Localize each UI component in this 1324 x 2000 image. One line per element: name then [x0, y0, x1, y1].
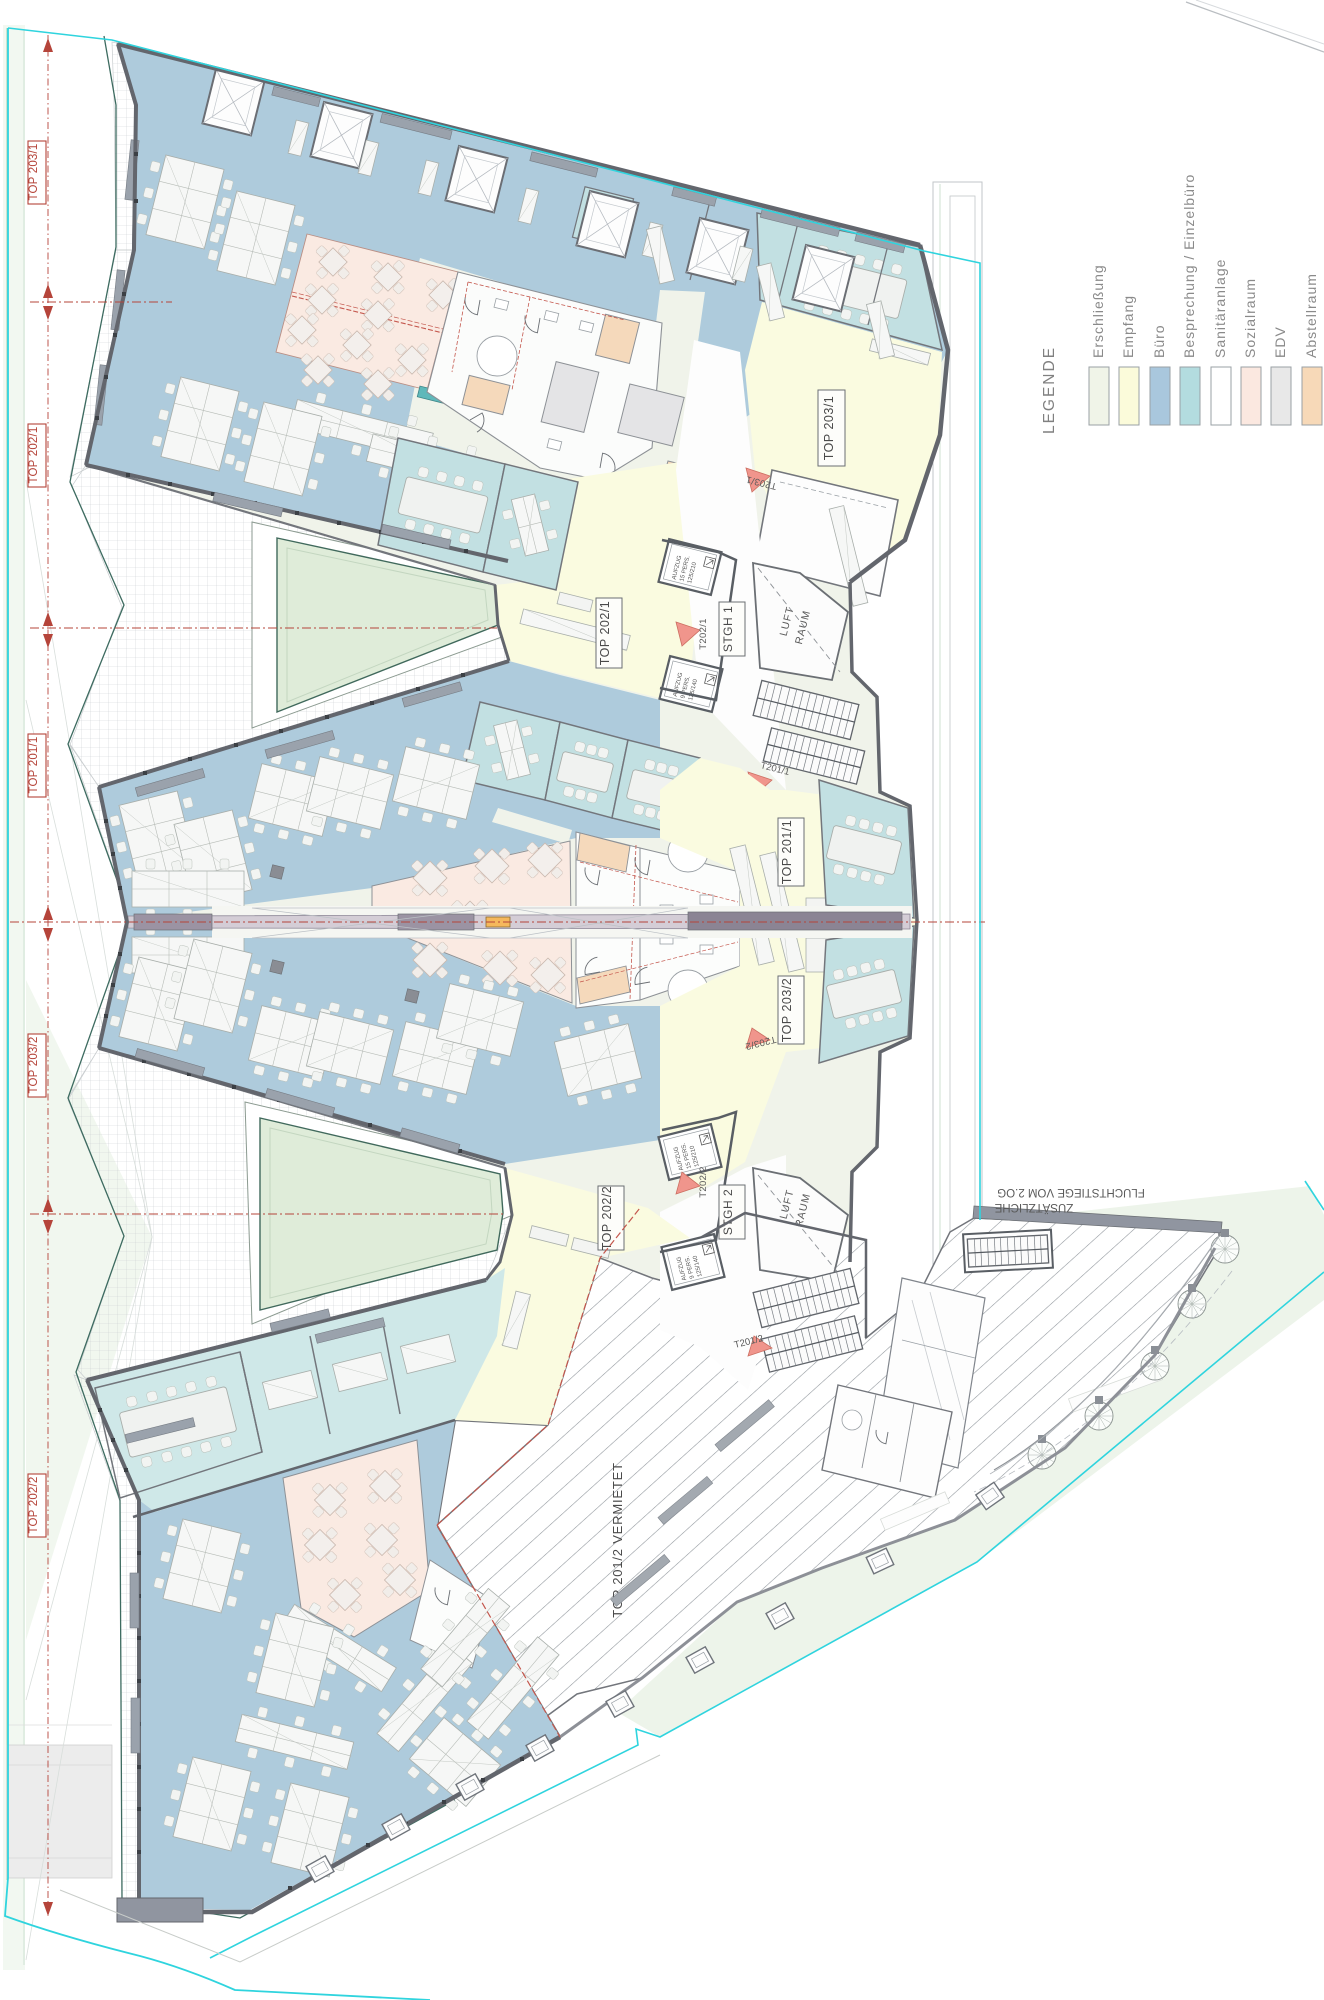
- svg-text:Büro: Büro: [1151, 324, 1167, 358]
- svg-text:Empfang: Empfang: [1120, 295, 1136, 358]
- svg-text:TOP 202/1: TOP 202/1: [28, 427, 40, 484]
- svg-text:T202/1: T202/1: [698, 618, 709, 649]
- svg-text:STGH 1: STGH 1: [721, 606, 735, 652]
- svg-text:EDV: EDV: [1272, 326, 1288, 358]
- svg-text:TOP 202/2: TOP 202/2: [28, 1477, 40, 1534]
- svg-text:TOP 202/1: TOP 202/1: [598, 601, 612, 666]
- svg-text:TOP 203/1: TOP 203/1: [822, 396, 836, 461]
- svg-text:FLUCHTSTIEGE VOM 2.OG: FLUCHTSTIEGE VOM 2.OG: [997, 1186, 1145, 1198]
- svg-text:LEGENDE: LEGENDE: [1041, 346, 1058, 434]
- svg-text:TOP 203/2: TOP 203/2: [28, 1037, 40, 1094]
- svg-text:Sozialraum: Sozialraum: [1242, 278, 1258, 358]
- svg-text:Erschließung: Erschließung: [1090, 264, 1106, 358]
- svg-text:TOP 202/2: TOP 202/2: [600, 1186, 614, 1251]
- svg-text:T202/2: T202/2: [698, 1166, 709, 1197]
- svg-text:TOP 201/1: TOP 201/1: [28, 737, 40, 794]
- svg-text:Besprechung / Einzelbüro: Besprechung / Einzelbüro: [1181, 174, 1197, 358]
- svg-text:TOP 203/2: TOP 203/2: [780, 978, 794, 1043]
- svg-text:ZUSÄTZLICHE: ZUSÄTZLICHE: [994, 1201, 1073, 1213]
- svg-text:TOP 203/1: TOP 203/1: [28, 144, 40, 201]
- svg-text:Abstellraum: Abstellraum: [1303, 273, 1319, 358]
- svg-text:Sanitäranlage: Sanitäranlage: [1212, 259, 1228, 358]
- svg-text:STGH 2: STGH 2: [721, 1189, 735, 1235]
- svg-text:TOP 201/1: TOP 201/1: [780, 820, 794, 885]
